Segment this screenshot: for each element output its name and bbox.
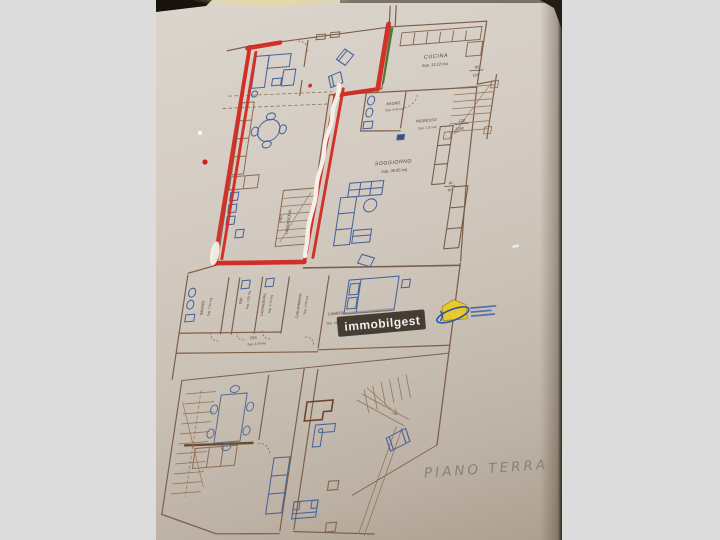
screenshot-of-floorplan-photo: CUCINA Sup. 13.12 mq BAGNO Sup. 4.45 mq … <box>0 0 720 540</box>
white-dot <box>198 131 202 135</box>
watermark: immobilgest <box>336 296 498 337</box>
walls-layer <box>146 0 508 540</box>
room-area-lavanderia: Sup. 4.74 mq <box>267 295 274 314</box>
room-label-ingresso: INGRESSO <box>416 117 438 124</box>
room-area-dis: Sup. 3.34 mq <box>247 341 266 346</box>
room-area-rip: Sup. 3.92 mq <box>245 290 252 309</box>
desk-icon <box>312 423 335 447</box>
counters-layer <box>169 26 485 540</box>
armchair-icons <box>327 48 355 88</box>
room-label-bagno-large: BAGNO <box>199 300 206 315</box>
dim1-top: 85 <box>474 65 479 69</box>
dim3-bottom: 60 <box>447 188 452 192</box>
room-area-cab-armadio: Sup. 6.50 mq <box>302 296 309 315</box>
dim3-top: 90 <box>448 181 453 185</box>
bathroom-fixture-icons <box>361 93 411 143</box>
floorplan-svg: CUCINA Sup. 13.12 mq BAGNO Sup. 4.45 mq … <box>0 0 720 540</box>
red-dot <box>202 159 207 164</box>
room-label-lavanderia: LAVANDERIA <box>260 293 267 317</box>
room-label-rip-lav-1: RIP <box>278 215 284 222</box>
door-arcs-layer <box>169 31 427 464</box>
living-room-sofa-icons <box>330 180 386 270</box>
light-reflection <box>194 0 350 15</box>
agency-logo-icon <box>434 296 498 326</box>
room-area-bagno-large: Sup. 7.50 mq <box>206 297 213 316</box>
bed-icon <box>344 275 411 314</box>
room-area-cucina: Sup. 13.12 mq <box>421 61 448 68</box>
room-label-rip: RIP <box>238 297 244 304</box>
room-label-bagno-small: BAGNO <box>386 100 401 106</box>
dim1-bottom: 150 <box>472 73 479 77</box>
floor-plan: CUCINA Sup. 13.12 mq BAGNO Sup. 4.45 mq … <box>146 0 511 540</box>
round-table-icon <box>249 112 289 150</box>
room-label-dis: DIS <box>250 335 258 341</box>
furniture-layer <box>153 37 490 530</box>
room-label-cucina: CUCINA <box>423 53 448 61</box>
red-marker-outline <box>213 24 388 269</box>
white-dash <box>512 244 519 248</box>
sofa-icon <box>250 53 298 97</box>
room-area-bagno-small: Sup. 4.45 mq <box>385 107 404 112</box>
dim2-top: 120 <box>458 119 465 123</box>
room-area-ingresso: Sup. 2.30 mq <box>418 125 437 130</box>
dim2-bottom: 290 <box>457 127 464 131</box>
room-area-soggiorno: Sup. 36.85 mq <box>381 167 408 174</box>
radiator-icons <box>422 124 478 251</box>
